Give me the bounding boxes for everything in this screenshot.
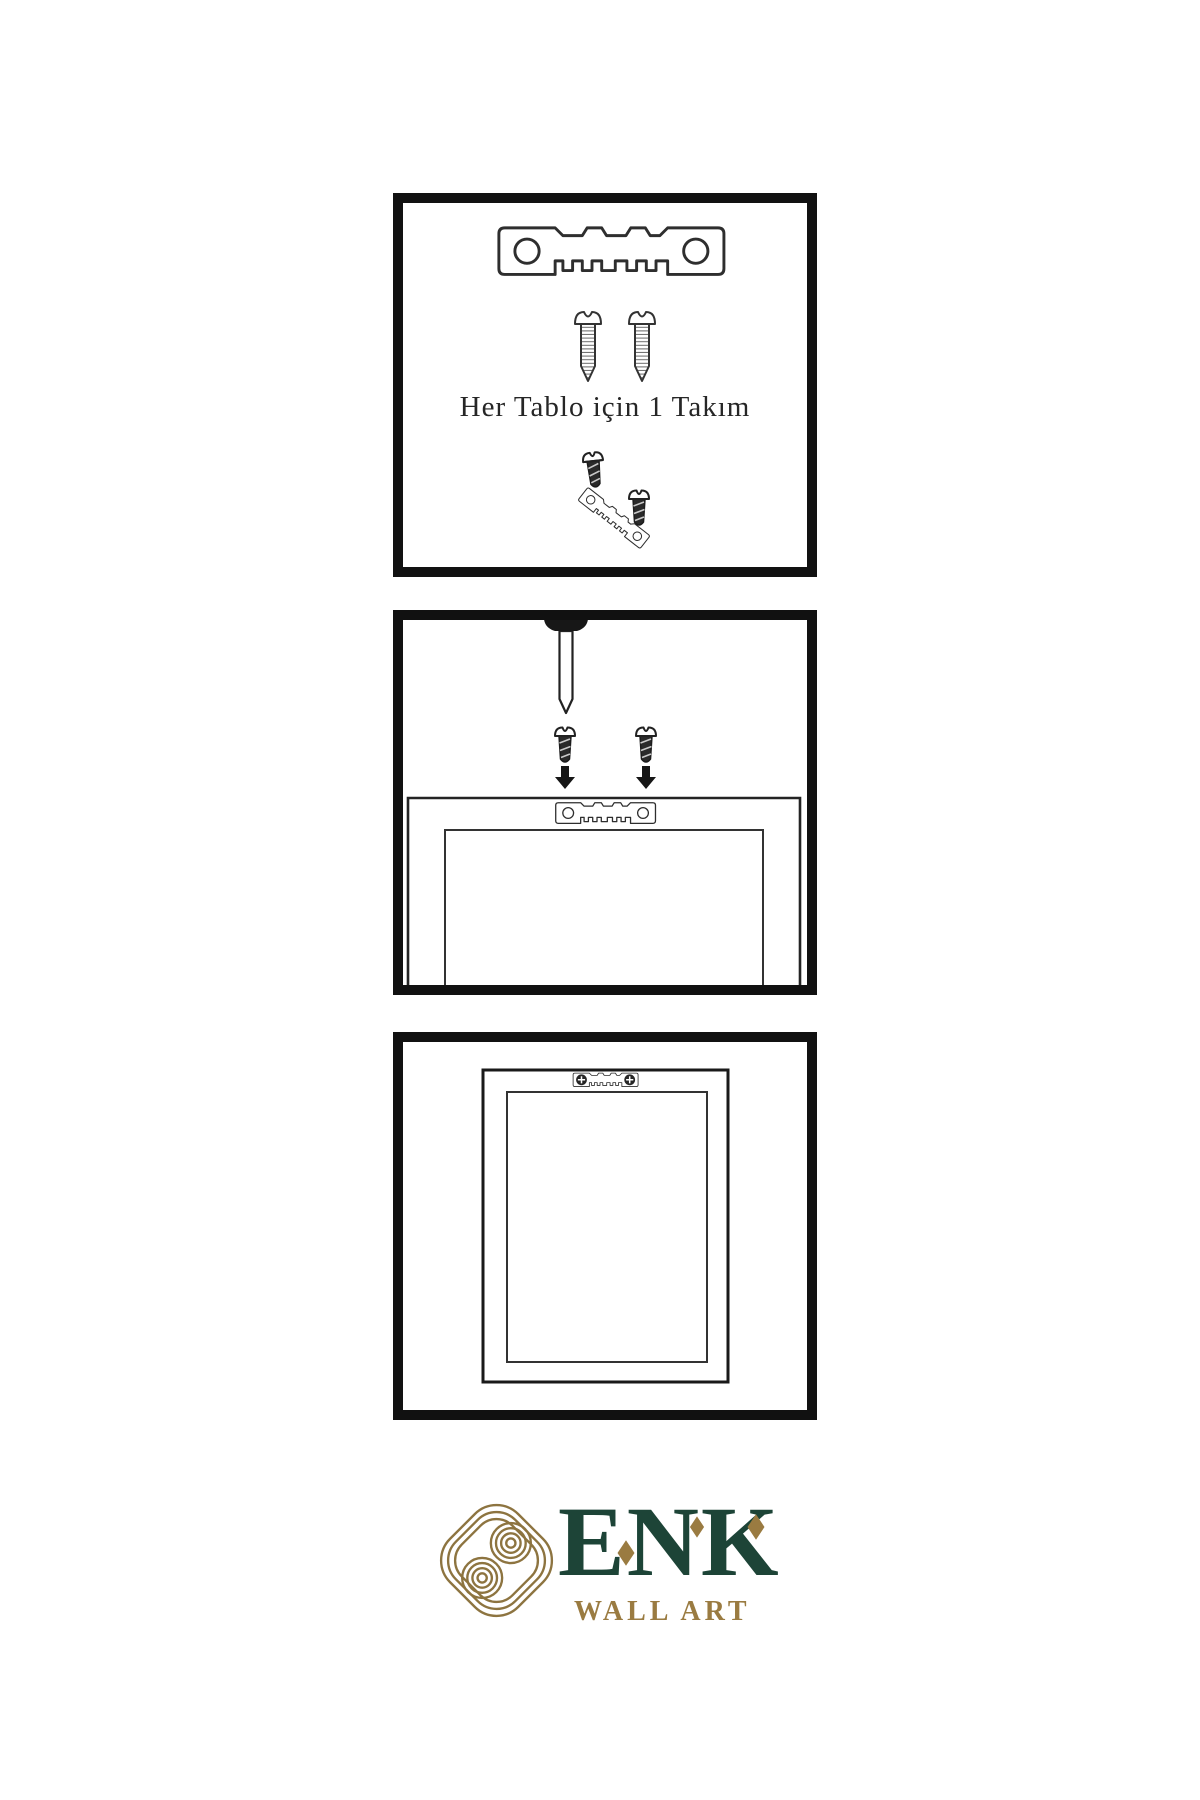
panel-hardware-kit: Her Tablo için 1 Takım (393, 193, 817, 577)
mounting-illustration (403, 620, 807, 985)
hardware-kit-illustration (403, 203, 807, 567)
knot-icon (435, 1498, 558, 1623)
installed-sawtooth-hanger-icon (573, 1073, 638, 1086)
panel-mounting-steps (393, 610, 817, 995)
arrow-down-icon (555, 766, 575, 789)
frame-back-icon (408, 798, 800, 985)
sawtooth-hanger-icon (499, 228, 724, 275)
panel-hanging-result (393, 1032, 817, 1420)
sawtooth-hanger-icon (556, 803, 656, 824)
small-screw-icon (582, 452, 605, 488)
phillips-screw-head-icon (576, 1074, 587, 1085)
phillips-screw-head-icon (624, 1074, 635, 1085)
hanging-illustration (403, 1042, 807, 1410)
small-screw-icon (636, 728, 656, 763)
framed-picture-back-icon (483, 1070, 728, 1382)
instruction-sheet: Her Tablo için 1 Takım (0, 0, 1200, 1800)
brand-subtitle: WALL ART (574, 1596, 751, 1628)
small-screw-icon (629, 491, 649, 526)
wall-nail-icon (544, 620, 588, 713)
kit-caption: Her Tablo için 1 Takım (403, 391, 807, 424)
screw-icon (575, 312, 601, 381)
small-screw-icon (555, 728, 575, 763)
brand-name: ENK (558, 1492, 781, 1592)
screw-into-hanger-icon (578, 452, 650, 549)
screw-icon (629, 312, 655, 381)
arrow-down-icon (636, 766, 656, 789)
